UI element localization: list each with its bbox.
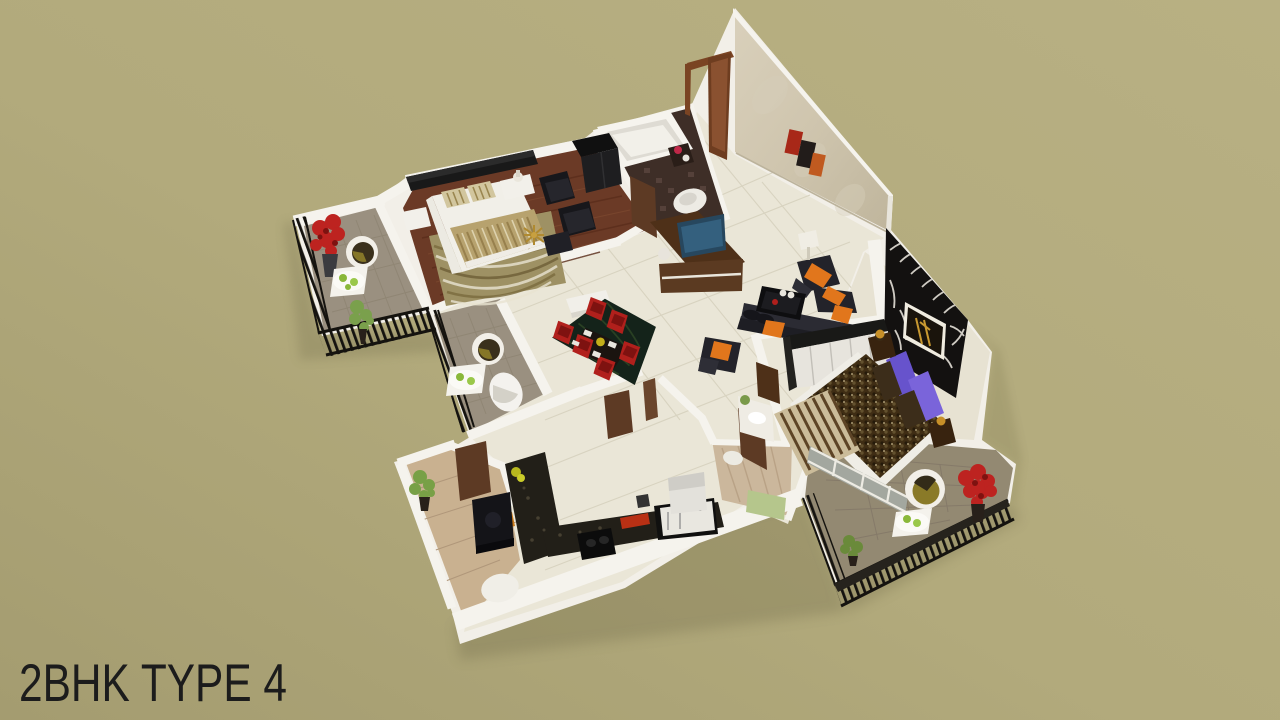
svg-text:2BHK TYPE 4: 2BHK TYPE 4: [19, 654, 287, 713]
